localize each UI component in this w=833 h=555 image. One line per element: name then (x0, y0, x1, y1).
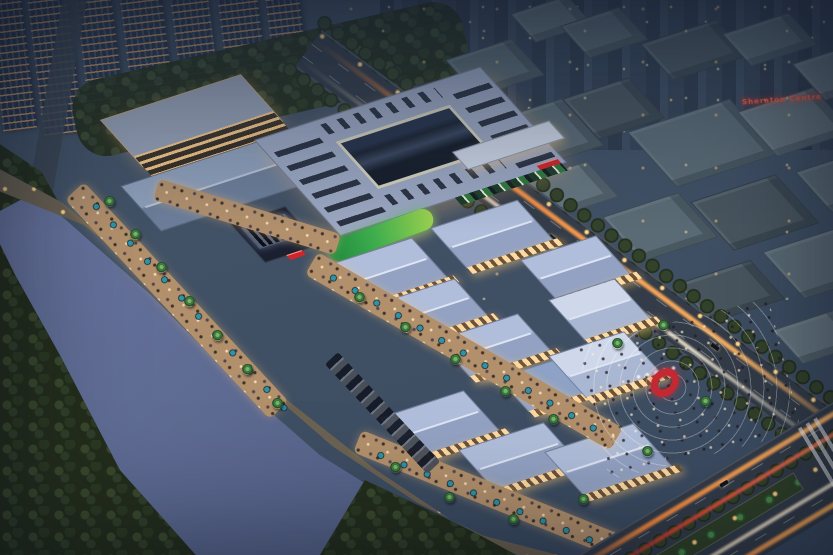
entrance-sign (286, 250, 306, 260)
palm-tree (354, 292, 365, 303)
palm-tree (612, 338, 623, 349)
palm-tree (242, 364, 253, 375)
palm-tree (184, 296, 195, 307)
palm-tree (578, 494, 589, 505)
palm-tree (700, 396, 711, 407)
palm-tree (500, 386, 511, 397)
palm-tree (642, 446, 653, 457)
palm-tree (156, 262, 167, 273)
palm-tree (508, 514, 519, 525)
palm-tree (390, 462, 401, 473)
palm-tree (212, 330, 223, 341)
palm-tree (400, 322, 411, 333)
palm-tree (548, 414, 559, 425)
palm-tree (104, 196, 115, 207)
aerial-mall-rendering: Aerial dusk rendering of a riverside ope… (0, 0, 833, 555)
palm-tree (130, 229, 141, 240)
palm-tree (450, 354, 461, 365)
palm-tree (444, 492, 455, 503)
palm-tree (658, 320, 669, 331)
palm-tree (272, 398, 283, 409)
